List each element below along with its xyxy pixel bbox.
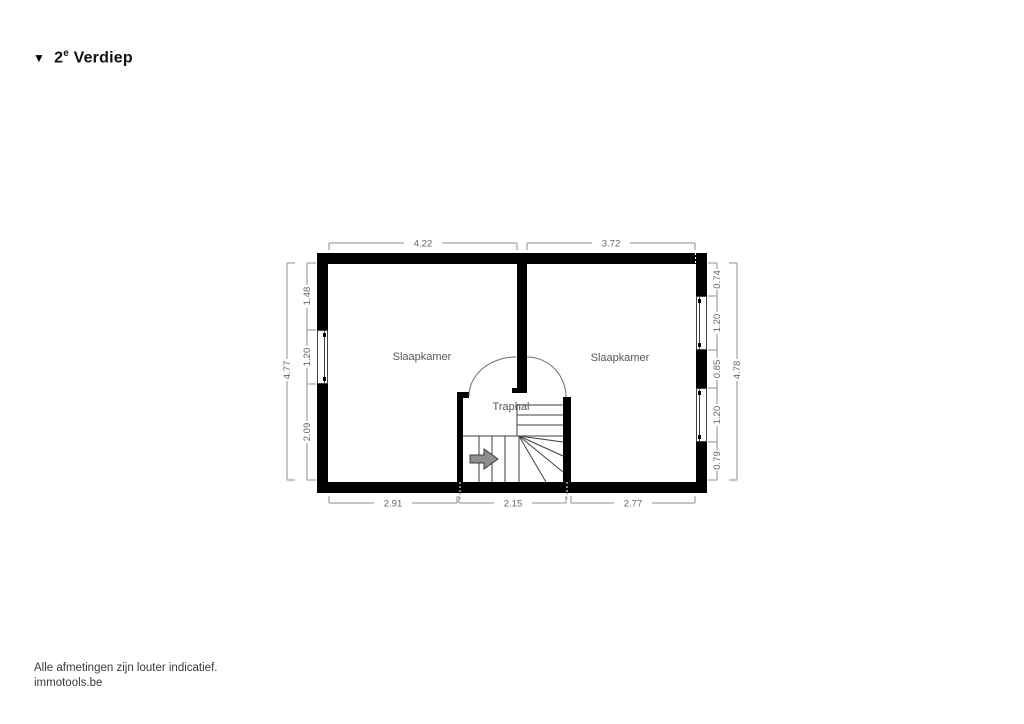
- window-right-upper: [697, 297, 707, 350]
- dim-right-inner-5: 0.79: [712, 451, 723, 470]
- wall-traphal-right: [563, 397, 571, 482]
- dim-left: 1.48 1.20 2.09 4.77: [282, 263, 316, 480]
- wall-left-upper: [317, 253, 328, 330]
- window-right-lower: [697, 389, 707, 442]
- dim-top-right: 3.72: [602, 239, 621, 250]
- dim-top-left: 4.22: [414, 239, 433, 250]
- room-label-left-bedroom: Slaapkamer: [393, 351, 452, 363]
- wall-divider-foot: [512, 388, 527, 393]
- room-label-stair-hall: Traphal: [493, 401, 530, 413]
- wall-traphal-left: [457, 392, 463, 482]
- dim-right-inner-4: 1.20: [712, 406, 723, 425]
- dim-right: 0.74 1.20 0.85 1.20 0.79 4.78: [708, 263, 743, 480]
- floor-plan: Slaapkamer Slaapkamer Traphal 4.22 3.72 …: [0, 0, 1024, 724]
- wall-top: [317, 253, 707, 264]
- footer-disclaimer: Alle afmetingen zijn louter indicatief.: [34, 661, 217, 676]
- dim-right-inner-2: 1.20: [712, 314, 723, 333]
- footer: Alle afmetingen zijn louter indicatief. …: [34, 661, 217, 691]
- dim-bottom-left: 2.91: [384, 499, 403, 510]
- footer-brand: immotools.be: [34, 676, 217, 691]
- staircase: [463, 405, 563, 482]
- wall-left-lower: [317, 384, 328, 493]
- room-label-right-bedroom: Slaapkamer: [591, 352, 650, 364]
- dim-left-inner-2: 1.20: [302, 348, 313, 367]
- dim-right-inner-1: 0.74: [712, 270, 723, 289]
- arch-left-arc: [469, 357, 516, 396]
- window-left: [318, 331, 328, 384]
- dim-left-inner-1: 1.48: [302, 287, 313, 306]
- wall-divider: [517, 253, 527, 388]
- wall-bottom: [317, 482, 707, 493]
- walls: [317, 253, 707, 493]
- stair-direction-arrow-icon: [470, 449, 498, 469]
- wall-right-lower: [696, 442, 707, 493]
- dim-bottom-middle: 2.15: [504, 499, 523, 510]
- wall-right-upper: [696, 253, 707, 296]
- dim-left-inner-3: 2.09: [302, 423, 313, 442]
- dim-left-outer: 4.77: [282, 361, 293, 380]
- dim-right-inner-3: 0.85: [712, 360, 723, 379]
- arch-right-arc: [527, 357, 566, 397]
- windows: [318, 297, 707, 442]
- dim-right-outer: 4.78: [732, 361, 743, 380]
- wall-right-middle: [696, 350, 707, 388]
- dim-bottom-right: 2.77: [624, 499, 643, 510]
